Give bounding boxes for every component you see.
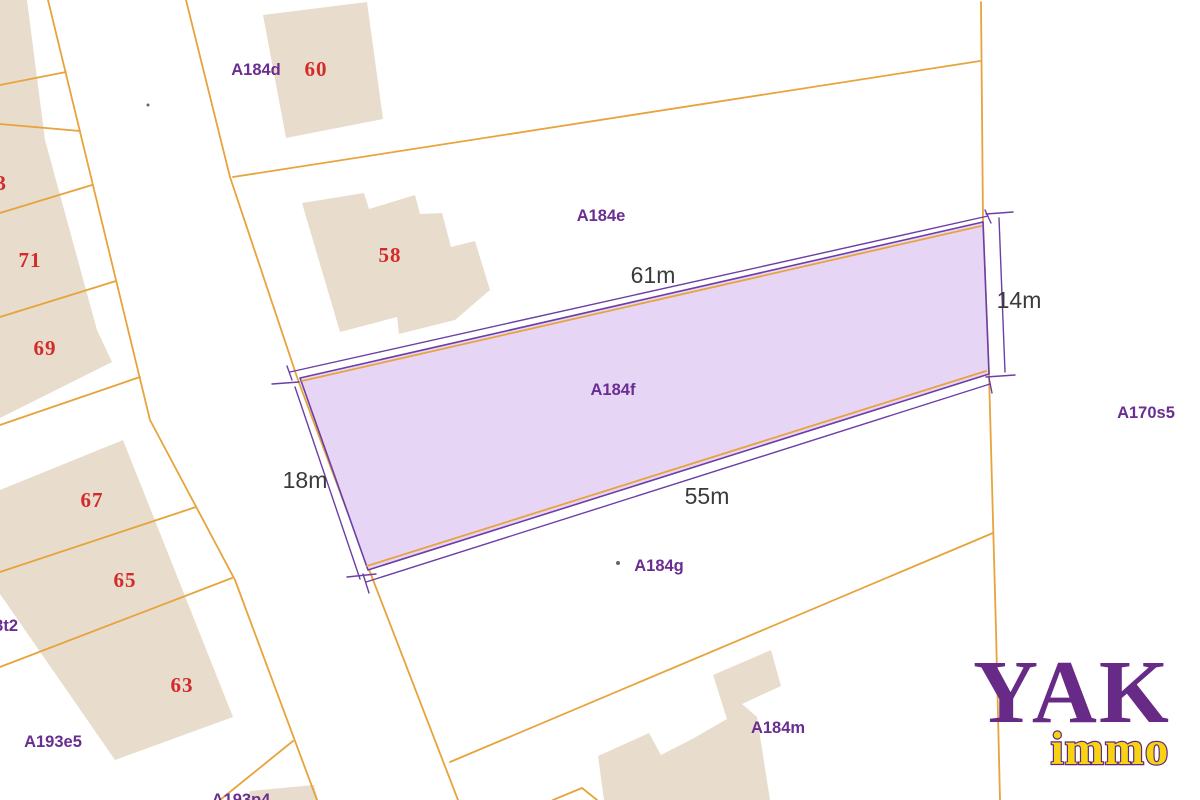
house-number-71: 71 xyxy=(19,248,42,272)
parcel-label-a184g: A184g xyxy=(634,557,684,575)
parcel-label-a184f: A184f xyxy=(591,381,636,399)
parcel-label-a184e: A184e xyxy=(577,207,626,225)
parcel-label-a193t2: A193t2 xyxy=(0,617,18,635)
house-number-60: 60 xyxy=(305,57,328,81)
dimension-label-top: 61m xyxy=(631,262,676,288)
dimension-label-right: 14m xyxy=(997,287,1042,313)
survey-point-dot xyxy=(616,561,620,565)
parcel-label-a170s5: A170s5 xyxy=(1117,404,1175,422)
house-number-67: 67 xyxy=(81,488,104,512)
cadastral-map-page: A184d A184e A184f A184g A184m A170s5 A19… xyxy=(0,0,1200,800)
logo-text-immo: immo xyxy=(1051,723,1170,775)
dimension-label-left: 18m xyxy=(283,467,328,493)
house-number-69: 69 xyxy=(34,336,57,360)
house-number-63: 63 xyxy=(171,673,194,697)
parcel-label-a184d: A184d xyxy=(231,61,281,79)
house-number-73: 73 xyxy=(0,171,7,195)
dimension-label-bottom: 55m xyxy=(685,483,730,509)
house-number-58: 58 xyxy=(379,243,402,267)
survey-point-dot xyxy=(147,104,150,107)
parcel-label-a193e5: A193e5 xyxy=(24,733,82,751)
house-number-65: 65 xyxy=(114,568,137,592)
cadastral-map: A184d A184e A184f A184g A184m A170s5 A19… xyxy=(0,0,1200,800)
parcel-label-a193p4: A193p4 xyxy=(212,791,272,800)
parcel-label-a184m: A184m xyxy=(751,719,805,737)
